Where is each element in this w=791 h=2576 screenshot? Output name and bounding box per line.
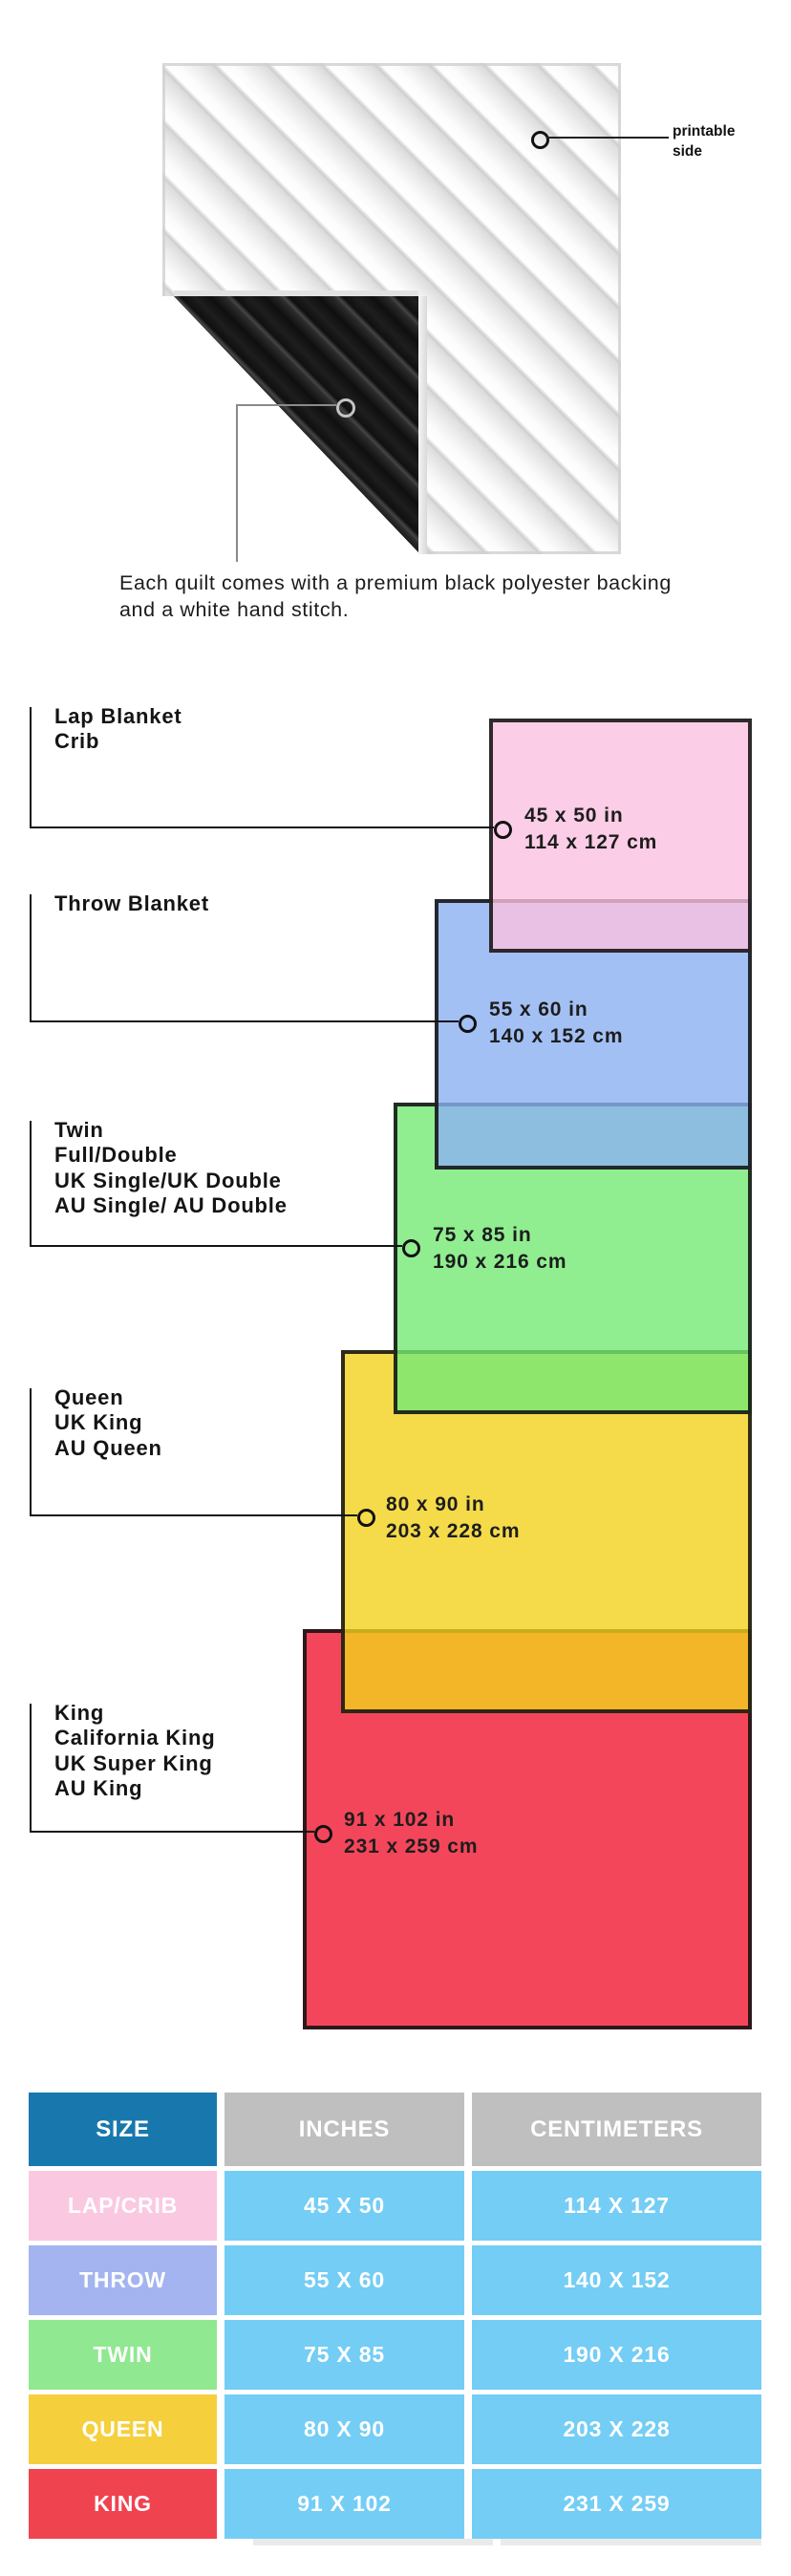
printable-side-dot-icon (531, 131, 549, 149)
size-dims-queen: 80 x 90 in 203 x 228 cm (386, 1492, 520, 1546)
quilt-fold-seam (174, 290, 418, 296)
size-label-throw: Throw Blanket (54, 891, 209, 916)
table-header-centimeters: CENTIMETERS (472, 2093, 761, 2166)
size-dims-lap: 45 x 50 in 114 x 127 cm (524, 803, 657, 857)
table-shadow-inches (253, 2539, 493, 2545)
backing-dot-icon (336, 398, 355, 418)
size-label-king: King California King UK Super King AU Ki… (54, 1701, 215, 1802)
table-row-twin-inches: 75 X 85 (224, 2320, 464, 2390)
table-shadow-centimeters (501, 2539, 761, 2545)
table-row-throw-inches: 55 X 60 (224, 2245, 464, 2315)
quilt-fold-edge (418, 296, 427, 554)
table-row-lap-inches: 45 X 50 (224, 2171, 464, 2241)
table-row-king-inches: 91 X 102 (224, 2469, 464, 2539)
printable-side-label: printable side (673, 122, 753, 162)
callout-dot-icon-king (314, 1825, 332, 1843)
backing-callout-line-h (237, 404, 336, 406)
backing-callout-line-v (236, 404, 238, 562)
printable-side-callout-line (546, 137, 669, 139)
size-table: SIZE INCHES CENTIMETERS LAP/CRIB 45 X 50… (29, 2093, 761, 2539)
callout-bracket-queen (30, 1388, 32, 1515)
size-dims-throw: 55 x 60 in 140 x 152 cm (489, 997, 623, 1051)
table-row-queen-cm: 203 X 228 (472, 2394, 761, 2464)
size-label-twin: Twin Full/Double UK Single/UK Double AU … (54, 1118, 288, 1219)
size-label-queen: Queen UK King AU Queen (54, 1385, 162, 1461)
size-label-lap: Lap Blanket Crib (54, 704, 182, 755)
size-dims-twin: 75 x 85 in 190 x 216 cm (433, 1222, 567, 1277)
table-header-size: SIZE (29, 2093, 217, 2166)
callout-line-twin (30, 1245, 402, 1247)
table-row-lap-cm: 114 X 127 (472, 2171, 761, 2241)
table-row-throw-cm: 140 X 152 (472, 2245, 761, 2315)
table-row-throw-size: THROW (29, 2245, 217, 2315)
size-dims-king: 91 x 102 in 231 x 259 cm (344, 1807, 478, 1861)
table-row-lap-size: LAP/CRIB (29, 2171, 217, 2241)
callout-dot-icon-queen (357, 1509, 375, 1527)
table-header-inches: INCHES (224, 2093, 464, 2166)
table-row-twin-cm: 190 X 216 (472, 2320, 761, 2390)
table-row-twin-size: TWIN (29, 2320, 217, 2390)
table-row-queen-size: QUEEN (29, 2394, 217, 2464)
callout-line-king (30, 1831, 314, 1833)
callout-dot-icon-lap (494, 821, 512, 839)
backing-note: Each quilt comes with a premium black po… (119, 569, 712, 624)
callout-dot-icon-twin (402, 1239, 420, 1257)
callout-line-queen (30, 1514, 357, 1516)
table-row-king-size: KING (29, 2469, 217, 2539)
table-row-queen-inches: 80 X 90 (224, 2394, 464, 2464)
callout-line-lap (30, 826, 494, 828)
callout-dot-icon-throw (459, 1015, 477, 1033)
callout-bracket-lap (30, 707, 32, 827)
callout-bracket-king (30, 1704, 32, 1832)
callout-bracket-throw (30, 894, 32, 1021)
callout-line-throw (30, 1020, 459, 1022)
table-row-king-cm: 231 X 259 (472, 2469, 761, 2539)
callout-bracket-twin (30, 1121, 32, 1247)
quilt-size-chart-page: printable side Each quilt comes with a p… (0, 0, 791, 2576)
